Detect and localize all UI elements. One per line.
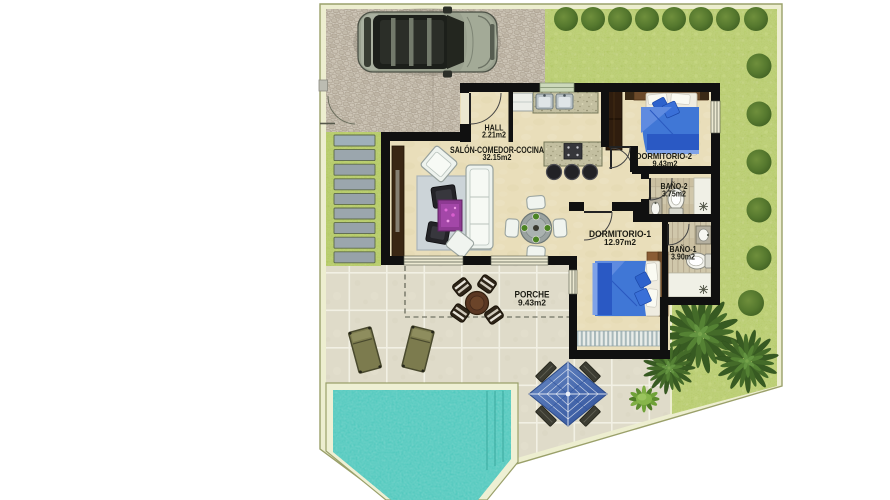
svg-text:9.43m2: 9.43m2: [653, 160, 679, 169]
svg-text:3.90m2: 3.90m2: [671, 253, 695, 262]
svg-text:12.97m2: 12.97m2: [604, 237, 636, 247]
svg-text:32.15m2: 32.15m2: [483, 152, 512, 162]
svg-text:3.75m2: 3.75m2: [662, 190, 686, 199]
svg-text:9.43m2: 9.43m2: [518, 298, 546, 308]
svg-text:2.21m2: 2.21m2: [482, 131, 506, 140]
